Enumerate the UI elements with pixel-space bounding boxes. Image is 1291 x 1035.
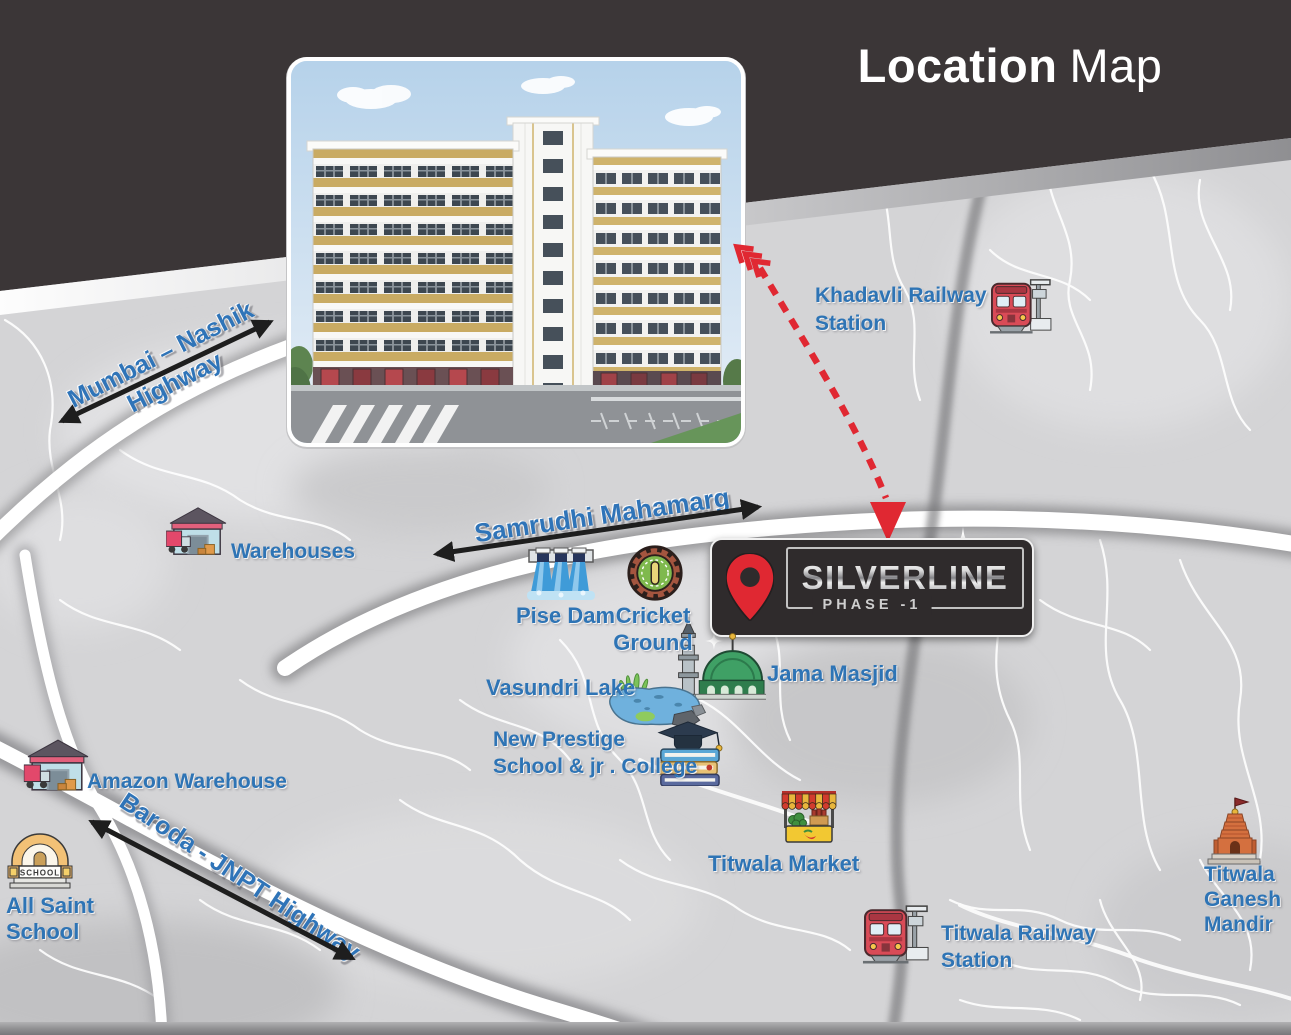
poi-label-cricket-ground: Cricket Ground	[612, 602, 694, 656]
warehouse-icon	[166, 504, 230, 560]
poi-label-all-saint-school: All Saint School	[6, 893, 94, 945]
poi-label-line: Station	[815, 310, 987, 338]
poi-label-line: Khadavli Railway	[815, 282, 987, 310]
page-title: LocationMap	[790, 38, 1230, 93]
poi-label-line: School	[6, 919, 94, 945]
poi-label-pise-dam: Pise Dam	[516, 602, 608, 629]
poi-label-vasundri-lake: Vasundri Lake	[486, 674, 635, 701]
poi-label-khadavli-station: Khadavli Railway Station	[815, 282, 987, 338]
warehouse-icon	[20, 736, 96, 796]
poi-label-line: All Saint	[6, 893, 94, 919]
project-name: SILVERLINE	[802, 559, 1009, 597]
train-icon	[988, 276, 1052, 334]
market-stall-icon	[776, 788, 842, 848]
cricket-ground-icon	[626, 543, 684, 603]
dam-icon	[527, 546, 595, 602]
project-phase: PHASE -1	[813, 596, 932, 615]
poi-label-line: New Prestige	[493, 726, 697, 753]
bottom-edge-band	[0, 1022, 1291, 1035]
school-icon: SCHOOL	[6, 828, 74, 892]
poi-label-jama-masjid: Jama Masjid	[767, 660, 898, 687]
poi-label-titwala-station: Titwala Railway Station	[941, 920, 1096, 974]
poi-label-line: Ganesh	[1204, 887, 1281, 912]
poi-label-titwala-market: Titwala Market	[708, 850, 859, 877]
poi-label-line: Cricket	[612, 602, 694, 629]
poi-label-line: Titwala	[1204, 862, 1281, 887]
poi-label-new-prestige: New Prestige School & jr . College	[493, 726, 697, 780]
title-bold: Location	[858, 39, 1058, 92]
poi-label-warehouses: Warehouses	[231, 538, 355, 565]
mumbai-nashik-arrow	[62, 322, 270, 421]
location-pin-icon	[726, 553, 774, 621]
poi-label-line: Mandir	[1204, 912, 1281, 937]
location-map-poster: LocationMap	[0, 0, 1291, 1035]
poi-label-line: School & jr . College	[493, 753, 697, 780]
baroda-arrow	[92, 822, 352, 958]
poi-label-line: Ground	[612, 629, 694, 656]
poi-label-line: Titwala Railway	[941, 920, 1096, 947]
temple-icon	[1204, 796, 1264, 866]
poi-label-titwala-mandir: Titwala Ganesh Mandir	[1204, 862, 1281, 937]
train-icon	[860, 902, 930, 964]
poi-label-line: Station	[941, 947, 1096, 974]
poi-label-amazon-warehouse: Amazon Warehouse	[87, 768, 287, 795]
school-sign-text: SCHOOL	[20, 869, 60, 878]
title-regular: Map	[1069, 39, 1162, 92]
